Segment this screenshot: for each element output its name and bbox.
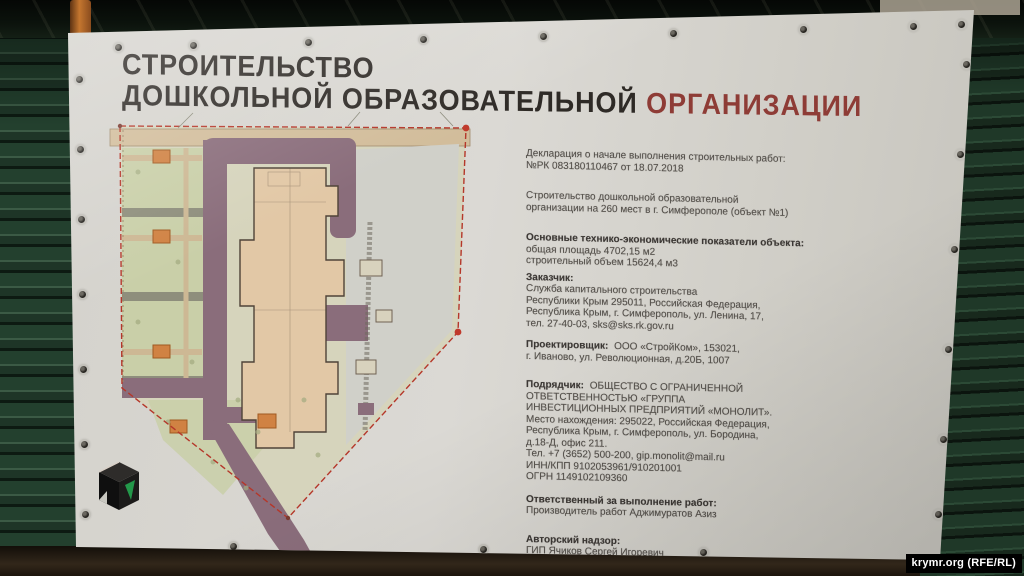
grommet xyxy=(81,441,88,448)
grommet xyxy=(540,33,547,40)
declaration-block: Декларация о начале выполнения строитель… xyxy=(526,148,918,180)
grommet xyxy=(670,30,677,37)
section-heading: Подрядчик: xyxy=(526,379,584,391)
grommet xyxy=(80,366,87,373)
grommet xyxy=(78,216,85,223)
grommet xyxy=(945,346,952,353)
project-name-block: Строительство дошкольной образовательной… xyxy=(526,190,918,222)
designer-block: Проектировщик: ООО «СтройКом», 153021, г… xyxy=(526,339,918,371)
grommet xyxy=(82,511,89,518)
grommet xyxy=(420,36,427,43)
grommet xyxy=(800,26,807,33)
walkway xyxy=(122,292,204,301)
grommet xyxy=(935,511,942,518)
banner-info-text: Декларация о начале выполнения строитель… xyxy=(526,148,918,576)
grommet xyxy=(951,246,958,253)
construction-info-banner: СТРОИТЕЛЬСТВО ДОШКОЛЬНОЙ ОБРАЗОВАТЕЛЬНОЙ… xyxy=(60,6,980,572)
site-plan xyxy=(108,108,512,568)
wooden-pole xyxy=(70,0,91,35)
grommet xyxy=(957,151,964,158)
walkway xyxy=(122,208,204,217)
grommet xyxy=(963,61,970,68)
grommet xyxy=(79,291,86,298)
responsible-block: Ответственный за выполнение работ: Произ… xyxy=(526,494,918,526)
tech-indicators-block: Основные технико-экономические показател… xyxy=(526,232,918,275)
grommet xyxy=(115,44,122,51)
grommet xyxy=(958,21,965,28)
photo-credit-watermark: krymr.org (RFE/RL) xyxy=(906,554,1022,573)
grommet xyxy=(190,42,197,49)
photo-scene: СТРОИТЕЛЬСТВО ДОШКОЛЬНОЙ ОБРАЗОВАТЕЛЬНОЙ… xyxy=(0,0,1024,576)
customer-block: Заказчик: Служба капитального строительс… xyxy=(526,272,918,338)
grommet xyxy=(305,39,312,46)
contractor-block: Подрядчик: ОБЩЕСТВО С ОГРАНИЧЕННОЙ ОТВЕТ… xyxy=(526,379,918,491)
leader-lines xyxy=(178,112,453,128)
corrugated-fence-left xyxy=(0,0,78,576)
east-zone xyxy=(346,144,459,445)
section-heading: Проектировщик: xyxy=(526,339,608,352)
banner-title-line2-accent: ОРГАНИЗАЦИИ xyxy=(646,88,862,123)
monolit-logo-icon xyxy=(93,458,145,514)
grommet xyxy=(77,146,84,153)
grommet xyxy=(76,76,83,83)
grommet xyxy=(910,23,917,30)
grommet xyxy=(940,436,947,443)
